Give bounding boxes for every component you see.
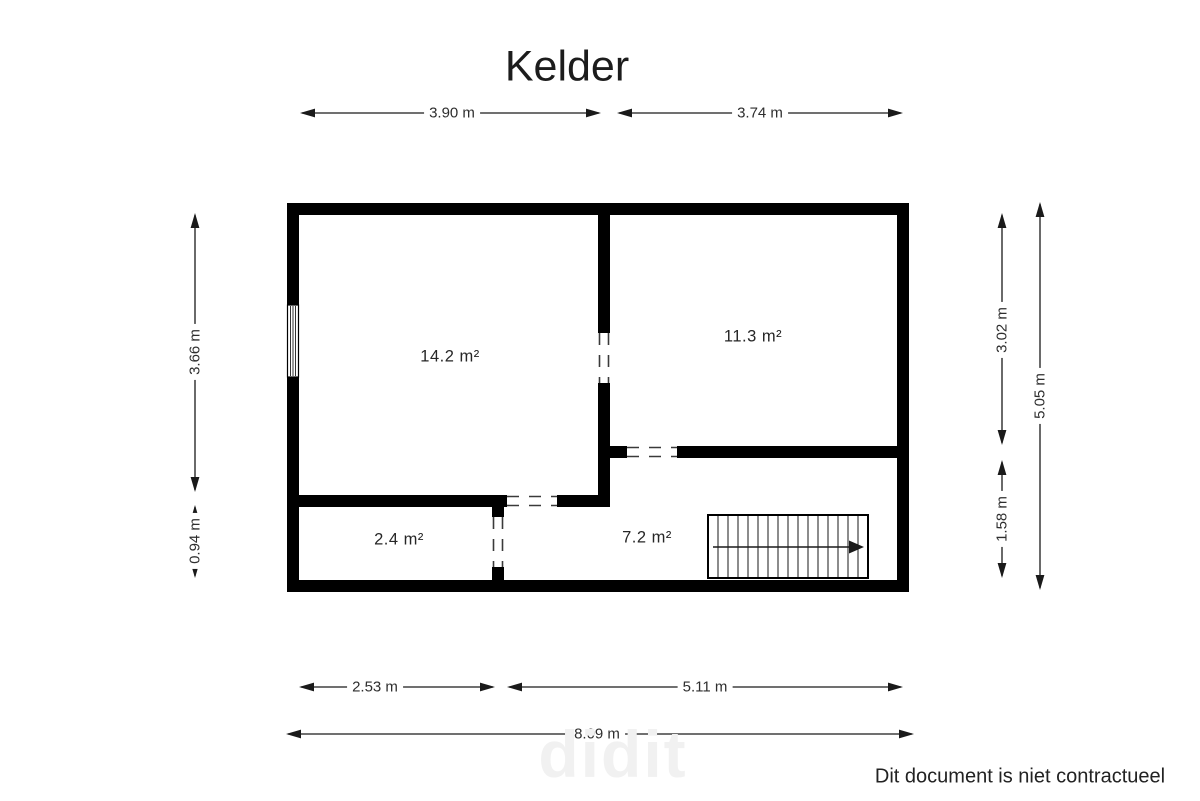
wall-left-lower <box>287 377 299 592</box>
dim-label-left-upper: 3.66 m <box>188 324 203 380</box>
door-lower-vertical <box>494 517 503 567</box>
wall-lower-vertical-lower <box>492 567 504 580</box>
floor-plan-drawing <box>0 0 1200 801</box>
room-area-label-large-left: 14.2 m² <box>420 348 479 367</box>
door-right-horizontal <box>627 448 677 457</box>
dim-label-bottom-left: 2.53 m <box>347 680 403 695</box>
wall-right-horizontal-stub <box>610 446 627 458</box>
door-center-vertical <box>600 333 609 383</box>
disclaimer-text: Dit document is niet contractueel <box>875 766 1165 789</box>
dim-label-right-total: 5.05 m <box>1033 368 1048 424</box>
door-left-horizontal <box>507 497 557 506</box>
wall-top <box>287 203 909 215</box>
wall-left-horizontal-stub <box>557 495 610 507</box>
room-area-label-large-right: 11.3 m² <box>724 328 782 347</box>
window <box>288 305 299 377</box>
dim-label-right-upper: 3.02 m <box>995 302 1010 358</box>
wall-left-horizontal <box>299 495 507 507</box>
wall-left-upper <box>287 203 299 305</box>
wall-center-vertical-upper <box>598 215 610 333</box>
wall-right <box>897 203 909 592</box>
room-area-label-small-left: 2.4 m² <box>374 531 424 550</box>
staircase <box>708 515 868 578</box>
dim-label-top-right: 3.74 m <box>732 106 788 121</box>
dim-label-bottom-right: 5.11 m <box>678 680 733 695</box>
floor-plan-page: Kelder 3.90 m 3.74 m 3.66 m 0.94 m 3.02 … <box>0 0 1200 801</box>
room-area-label-hall: 7.2 m² <box>622 529 672 548</box>
page-title: Kelder <box>505 43 629 92</box>
dim-label-right-lower: 1.58 m <box>995 491 1010 547</box>
wall-lower-vertical-upper <box>492 507 504 517</box>
dim-label-top-left: 3.90 m <box>424 106 480 121</box>
wall-center-vertical-lower <box>598 383 610 507</box>
dim-label-bottom-total: 8.09 m <box>569 727 625 742</box>
dim-label-left-lower: 0.94 m <box>188 513 203 569</box>
wall-bottom <box>287 580 909 592</box>
wall-right-horizontal <box>677 446 897 458</box>
